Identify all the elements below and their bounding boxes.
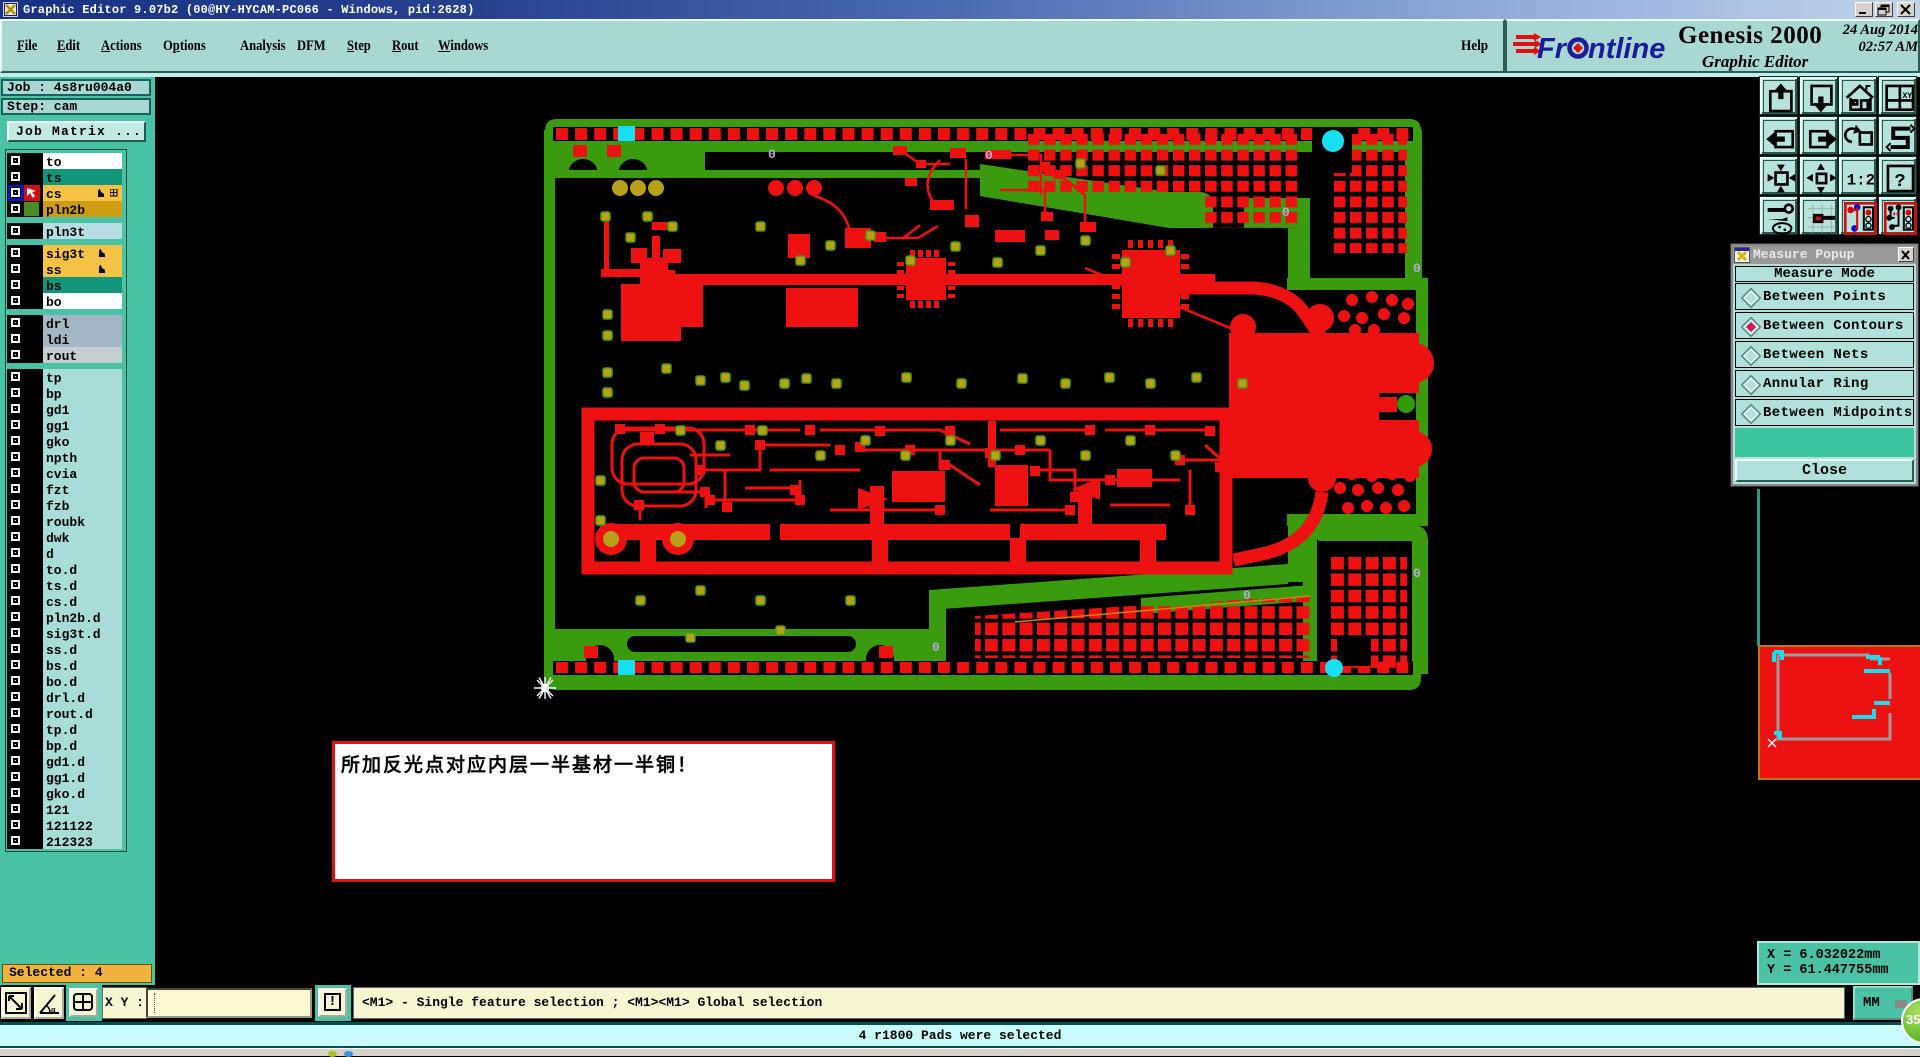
svg-text:0: 0 [1413,566,1421,581]
svg-text:0: 0 [985,148,993,163]
svg-text:?: ? [1895,171,1906,192]
svg-text:XY: XY [1902,92,1912,101]
svg-text:0: 0 [932,640,940,655]
svg-text:α: α [51,1005,56,1014]
svg-text:0: 0 [1243,588,1251,603]
svg-text:0: 0 [1282,205,1290,220]
svg-text:1:2: 1:2 [1847,171,1876,189]
svg-text:0: 0 [1413,261,1421,276]
svg-text:0: 0 [768,147,776,162]
